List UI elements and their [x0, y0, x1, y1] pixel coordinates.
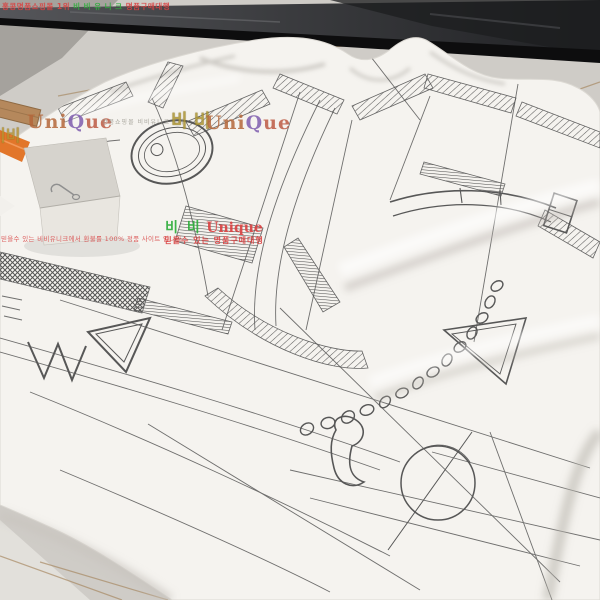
photo-scene [0, 0, 600, 600]
tshirt [0, 37, 600, 600]
product-photo: 홍콩명품쇼핑몰 1위 비 비 유 니 크 명품구매대행 비비 UniQue 명품… [0, 0, 600, 600]
